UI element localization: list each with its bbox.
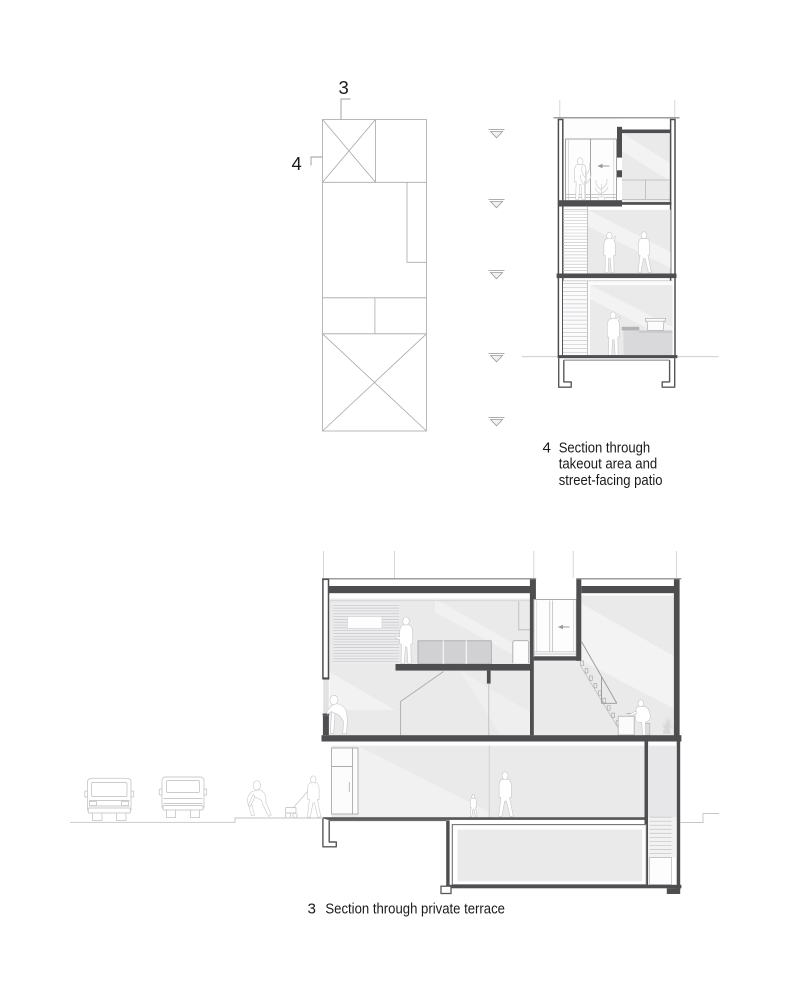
svg-text:3: 3 [339,77,349,98]
svg-text:takeout area and: takeout area and [559,456,658,473]
svg-text:Section through private terrac: Section through private terrace [325,901,505,918]
svg-text:4: 4 [543,440,551,457]
svg-text:4: 4 [292,153,302,174]
svg-text:3: 3 [308,901,316,918]
svg-text:Section through: Section through [559,440,651,457]
svg-text:street-facing patio: street-facing patio [559,472,663,489]
